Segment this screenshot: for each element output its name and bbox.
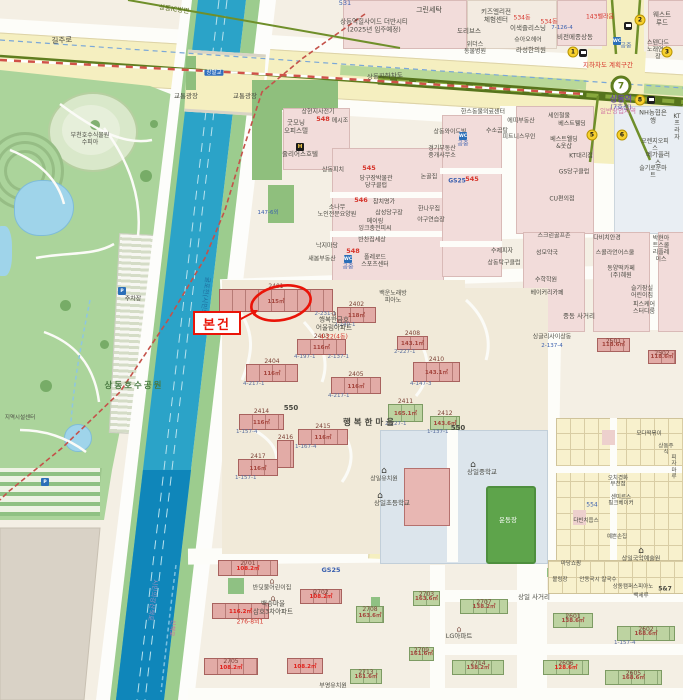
bus-stop-icon bbox=[579, 49, 587, 57]
school-icon: ⌂ bbox=[377, 491, 383, 501]
bus-stop-icon bbox=[624, 22, 632, 30]
school-icon: ⌂ bbox=[470, 460, 476, 470]
apartment-icon: ⌂ bbox=[331, 309, 336, 318]
subway-exit-marker: 5 bbox=[587, 130, 598, 141]
parking-icon: P bbox=[118, 287, 126, 295]
subject-label-box: 본건 bbox=[193, 311, 241, 335]
markers-layer: 123856WCWCWCPPH⌂⌂⌂⌂⌂⌂⌂⌂ bbox=[0, 0, 683, 700]
public-toilet-icon: WC bbox=[459, 132, 467, 140]
hotel-icon: H bbox=[296, 143, 304, 151]
subway-exit-marker: 1 bbox=[568, 47, 579, 58]
subway-station-icon: 7 bbox=[611, 76, 632, 97]
parking-icon: P bbox=[41, 478, 49, 486]
subway-exit-marker: 6 bbox=[617, 130, 628, 141]
subway-exit-marker: 8 bbox=[635, 95, 646, 106]
public-toilet-icon: WC bbox=[344, 255, 352, 263]
map-canvas[interactable]: 2401115㎡4-249-32-231-12402118㎡2-240-1240… bbox=[0, 0, 683, 700]
subway-exit-marker: 2 bbox=[635, 15, 646, 26]
subway-exit-marker: 3 bbox=[662, 47, 673, 58]
apartment-icon: ⌂ bbox=[270, 594, 275, 603]
school-icon: ⌂ bbox=[638, 546, 644, 556]
bus-stop-icon bbox=[647, 96, 655, 104]
school-icon: ⌂ bbox=[381, 466, 387, 476]
subway-line-number: 7 bbox=[618, 81, 624, 91]
apartment-icon: ⌂ bbox=[456, 625, 461, 634]
subject-label-text: 본건 bbox=[203, 314, 231, 333]
apartment-icon: ⌂ bbox=[269, 577, 274, 586]
public-toilet-icon: WC bbox=[613, 37, 621, 45]
